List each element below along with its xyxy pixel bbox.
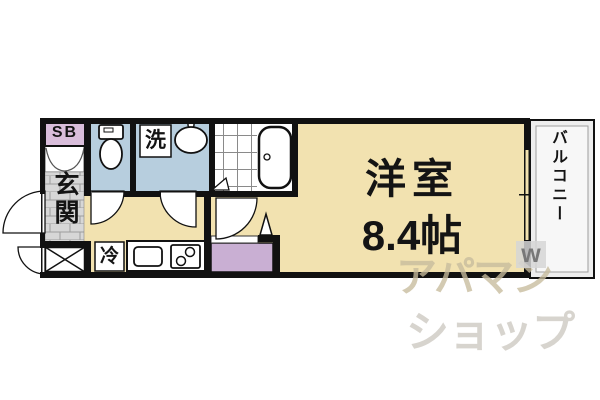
- washer-label: 洗: [140, 125, 171, 157]
- stove-icon: [171, 245, 200, 268]
- shoebox-label: SB: [45, 120, 85, 146]
- bathtub-icon: [259, 127, 291, 188]
- main-room-name: 洋室: [300, 145, 524, 205]
- entrance-door-swing: [3, 191, 45, 233]
- entrance-label: 玄関: [47, 171, 83, 243]
- shoe-closet: [45, 146, 84, 172]
- toilet-icon: [99, 125, 123, 169]
- floorplan-page: 洋室 8.4帖 玄関 バルコニー SB 洗 冷 アパマン ショップ w: [0, 0, 600, 400]
- kitchen-sink-icon: [134, 247, 162, 266]
- watermark-line2: ショップ: [406, 298, 574, 360]
- storage-counter: [211, 243, 273, 272]
- shaft-box: [45, 247, 85, 272]
- exterior-storage-door-swing: [18, 247, 45, 274]
- watermark-logo: w: [516, 241, 546, 268]
- fridge-label: 冷: [95, 242, 124, 271]
- bathroom-tile-floor: [215, 124, 257, 191]
